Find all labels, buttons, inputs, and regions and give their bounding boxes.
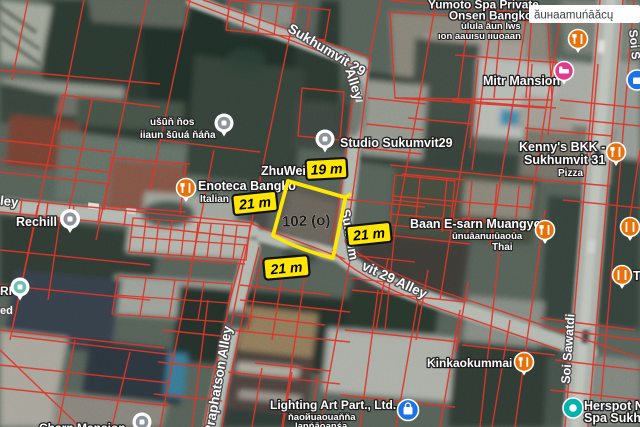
- svg-text:Rechill: Rechill: [16, 215, 57, 229]
- svg-text:Sukhumvit 31: Sukhumvit 31: [524, 153, 605, 167]
- svg-text:21 m: 21 m: [237, 193, 271, 212]
- svg-text:Enoteca Bangko: Enoteca Bangko: [198, 179, 296, 193]
- svg-text:ıon aauısu ııuoaan: ıon aauısu ııuoaan: [438, 31, 521, 42]
- svg-text:Kenny's BKK -: Kenny's BKK -: [519, 140, 605, 154]
- svg-text:Baan E-sarn Muangyos: Baan E-sarn Muangyos: [410, 217, 548, 231]
- svg-text:Kinkaokummai: Kinkaokummai: [427, 356, 512, 370]
- svg-text:lanńāoanśa: lanńāoanśa: [295, 421, 348, 427]
- svg-text:ūnuāanuıūaoūa: ūnuāanuıūaoūa: [452, 231, 523, 242]
- svg-text:Pizza: Pizza: [558, 168, 583, 179]
- svg-text:Spa Sukh: Spa Sukh: [584, 411, 640, 425]
- svg-text:19 m: 19 m: [310, 160, 343, 178]
- svg-text:21 m: 21 m: [351, 224, 385, 243]
- svg-text:21 m: 21 m: [269, 259, 303, 278]
- svg-text:ley: ley: [0, 193, 20, 210]
- svg-text:RI: RI: [0, 284, 12, 298]
- svg-text:T: T: [633, 269, 640, 283]
- svg-text:ed: ed: [0, 305, 13, 317]
- svg-text:Studio Sukumvit29: Studio Sukumvit29: [340, 136, 453, 150]
- svg-text:Lighting Art Part., Ltd....: Lighting Art Part., Ltd....: [270, 398, 406, 412]
- svg-text:ušūň ňos: ušūň ňos: [150, 117, 195, 128]
- svg-text:ZhuWei: ZhuWei: [261, 164, 306, 178]
- svg-text:Charn Mansion: Charn Mansion: [39, 421, 126, 427]
- svg-text:ăuнaamuńāăcų: ăuнaamuńāăcų: [534, 10, 613, 22]
- svg-text:Italian: Italian: [200, 194, 229, 205]
- svg-text:102 (o): 102 (o): [282, 212, 331, 231]
- svg-text:Thai: Thai: [492, 242, 513, 253]
- svg-text:iiaun šūuá ňáňa: iiaun šūuá ňáňa: [140, 130, 216, 141]
- svg-text:Mitr Mansion: Mitr Mansion: [483, 74, 560, 88]
